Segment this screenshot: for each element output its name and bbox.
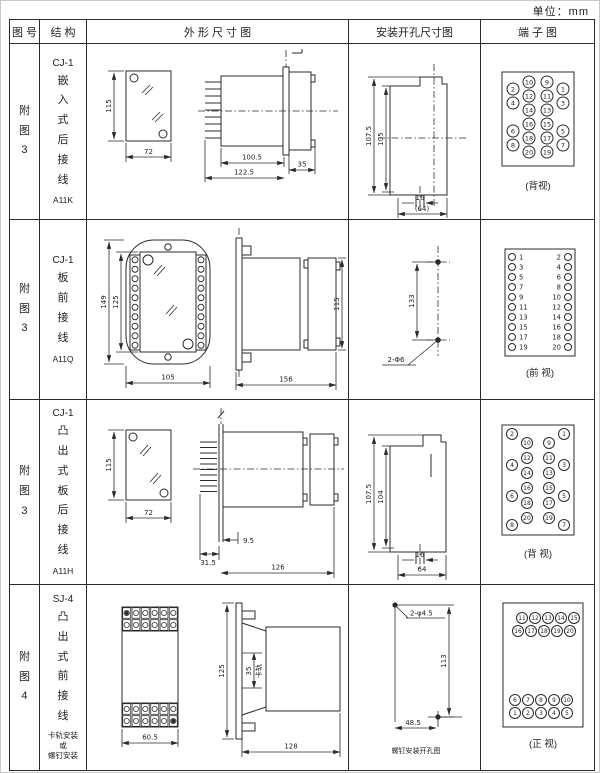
row1-outline-drawing: 115 72 100.5 (88, 46, 348, 218)
dim-128: 128 (284, 743, 297, 751)
svg-text:6: 6 (557, 273, 561, 281)
row4-side-view: 125 35 卡轨 128 (218, 603, 340, 757)
row2-model: CJ-1 (52, 255, 73, 266)
svg-text:2: 2 (526, 711, 530, 717)
dim-31-5: 31.5 (200, 559, 216, 567)
dim-35: 35 (245, 667, 253, 676)
svg-text:12: 12 (531, 616, 539, 622)
svg-text:8: 8 (511, 141, 515, 149)
row4-mount-note: 卡轨安装 或 螺钉安装 (48, 731, 78, 761)
svg-text:1: 1 (562, 431, 566, 438)
svg-text:4: 4 (510, 462, 514, 469)
svg-text:1: 1 (561, 85, 565, 93)
svg-text:16: 16 (514, 629, 522, 635)
svg-text:10: 10 (523, 440, 531, 447)
row2-code: A11Q (52, 354, 73, 364)
svg-text:2: 2 (511, 85, 515, 93)
row3-install-cell: 107.5 104 16 64 (349, 400, 481, 585)
svg-text:8: 8 (557, 283, 561, 291)
dim-64: (64) (414, 205, 429, 213)
dim-149: 149 (100, 295, 108, 308)
svg-text:3: 3 (562, 462, 566, 469)
row4-install-cell: 2-φ4.5 113 48.5 螺钉安装开孔图 (349, 585, 481, 770)
row3-terminal-diagram: 2110912114314131615651817201987 (背 视) (481, 417, 594, 567)
row2-terminal-circles: 1234567891011121314151617181920 (509, 253, 572, 351)
row4-note-line2: 或 (48, 741, 78, 751)
svg-text:14: 14 (557, 616, 565, 622)
svg-text:5: 5 (519, 273, 523, 281)
svg-text:16: 16 (552, 323, 561, 331)
svg-text:11: 11 (543, 92, 551, 100)
svg-text:15: 15 (545, 485, 553, 492)
svg-text:9: 9 (552, 698, 556, 704)
svg-text:18: 18 (523, 500, 531, 507)
row4-outline-cell: 60.5 125 35 卡轨 128 (87, 585, 349, 770)
header-install-dims: 安装开孔尺寸图 (349, 20, 481, 44)
row1-front-view: 115 72 (105, 71, 171, 162)
row2-install-cell: 133 2-Φ6 (349, 220, 481, 400)
row2-fig-no: 附图3 (10, 220, 40, 400)
dim-122-5: 122.5 (233, 168, 253, 176)
svg-text:19: 19 (543, 148, 551, 156)
svg-text:5: 5 (565, 711, 569, 717)
svg-text:20: 20 (552, 343, 561, 351)
dim-133: 133 (408, 294, 416, 307)
row2-structure: CJ-1 板前接线 A11Q (40, 220, 87, 400)
dim-125: 125 (112, 295, 120, 308)
svg-text:9: 9 (519, 293, 523, 301)
dim-125: 125 (218, 664, 226, 677)
dim-16: 16 (415, 551, 424, 559)
row1-fig-no: 附图3 (10, 44, 40, 220)
row1-fig-label: 附图3 (19, 102, 31, 161)
hole-spec: 2-φ4.5 (410, 610, 433, 618)
svg-text:18: 18 (540, 629, 548, 635)
row1-install-cell: 107.5 105 16 (64) (349, 44, 481, 220)
svg-text:17: 17 (545, 500, 553, 507)
row4-structure: SJ-4 凸出式前接线 卡轨安装 或 螺钉安装 (40, 585, 87, 770)
row3-view-label: (背 视) (524, 548, 552, 560)
svg-text:4: 4 (511, 99, 515, 107)
row2-fig-label: 附图3 (19, 280, 31, 339)
header-terminal-diagram: 端 子 图 (481, 20, 594, 44)
row1-structure: CJ-1 嵌入式后接线 A11K (40, 44, 87, 220)
svg-text:9: 9 (547, 440, 551, 447)
row3-structure: CJ-1 凸出式板后接线 A11H (40, 400, 87, 585)
svg-text:7: 7 (561, 141, 565, 149)
svg-text:13: 13 (544, 616, 552, 622)
row4-outline-drawing: 60.5 125 35 卡轨 128 (88, 587, 348, 768)
row1-terminal-cell: 1092112114314131615651817872019 (背视) (481, 44, 594, 220)
svg-text:16: 16 (523, 485, 531, 492)
svg-text:19: 19 (553, 629, 561, 635)
svg-text:18: 18 (525, 134, 533, 142)
dim-100-5: 100.5 (241, 153, 261, 161)
svg-text:5: 5 (561, 127, 565, 135)
svg-text:15: 15 (519, 323, 528, 331)
row4-front-view: 60.5 (122, 607, 178, 747)
svg-text:12: 12 (525, 92, 533, 100)
row3-install-drawing: 107.5 104 16 64 (350, 402, 480, 583)
header-structure: 结 构 (40, 20, 87, 44)
row3-side-view: 9.5 31.5 126 (193, 408, 344, 578)
dim-48-5: 48.5 (405, 719, 421, 727)
row4-terminal-cell: 1112131415161718192067891012345 (正 视) (481, 585, 594, 770)
dim-115: 115 (105, 458, 113, 471)
row2-view-label: (前 视) (526, 367, 554, 379)
row4-terminal-circles: 1112131415161718192067891012345 (510, 612, 580, 718)
svg-text:7: 7 (519, 283, 523, 291)
header-fig-no: 图 号 (10, 20, 40, 44)
svg-text:17: 17 (519, 333, 528, 341)
row1-terminal-circles: 1092112114314131615651817872019 (507, 76, 569, 158)
svg-text:20: 20 (525, 148, 533, 156)
spec-table: 图 号 结 构 外 形 尺 寸 图 安装开孔尺寸图 端 子 图 附图3 CJ-1… (9, 19, 595, 771)
svg-text:19: 19 (519, 343, 528, 351)
rail-label: 卡轨 (254, 664, 263, 678)
row3-struct-text: 凸出式板后接线 (57, 422, 69, 561)
svg-text:18: 18 (552, 333, 561, 341)
svg-text:1: 1 (513, 711, 517, 717)
svg-text:14: 14 (552, 313, 561, 321)
svg-text:14: 14 (525, 106, 533, 114)
svg-text:5: 5 (562, 493, 566, 500)
dim-35: 35 (297, 160, 306, 168)
svg-text:10: 10 (563, 698, 571, 704)
row1-view-label: (背视) (525, 180, 550, 192)
row1-side-view: 100.5 122.5 35 (198, 49, 338, 182)
row4-model: SJ-4 (53, 594, 74, 605)
dim-9-5: 9.5 (243, 537, 254, 545)
row2-outline-drawing: 149 125 105 (88, 222, 348, 398)
manual-page: 单位：mm 图 号 结 构 外 形 尺 寸 图 安装开孔尺寸图 端 子 图 附图… (0, 0, 600, 773)
header-outline-dims: 外 形 尺 寸 图 (87, 20, 349, 44)
svg-text:4: 4 (552, 711, 556, 717)
row2-outline-cell: 149 125 105 (87, 220, 349, 400)
row4-note-line3: 螺钉安装 (48, 751, 78, 761)
svg-text:11: 11 (545, 455, 553, 462)
row2-struct-text: 板前接线 (57, 269, 69, 348)
row2-side-view: 156 115 (236, 228, 346, 390)
svg-text:4: 4 (557, 263, 561, 271)
svg-text:10: 10 (552, 293, 561, 301)
row1-outline-cell: 115 72 100.5 (87, 44, 349, 220)
dim-72: 72 (144, 148, 153, 156)
dim-107-5: 107.5 (365, 483, 373, 503)
svg-text:16: 16 (525, 120, 533, 128)
dim-126: 126 (271, 563, 285, 571)
svg-text:3: 3 (519, 263, 523, 271)
dim-104: 104 (377, 489, 385, 503)
row3-code: A11H (53, 566, 74, 576)
svg-text:11: 11 (518, 616, 526, 622)
svg-text:6: 6 (513, 698, 517, 704)
dim-60-5: 60.5 (142, 734, 158, 742)
dim-105: 105 (377, 132, 385, 145)
row3-fig-no: 附图3 (10, 400, 40, 585)
row1-install-drawing: 107.5 105 16 (64) (350, 46, 480, 218)
row1-model: CJ-1 (52, 58, 73, 69)
row2-terminal-cell: 1234567891011121314151617181920 (前 视) (481, 220, 594, 400)
svg-text:2: 2 (557, 253, 561, 261)
row4-fig-label: 附图4 (19, 648, 31, 707)
row2-front-view: 149 125 105 (100, 240, 210, 388)
row4-terminal-diagram: 1112131415161718192067891012345 (正 视) (481, 595, 594, 761)
install-caption: 螺钉安装开孔图 (391, 746, 440, 755)
svg-text:7: 7 (526, 698, 530, 704)
svg-text:13: 13 (545, 470, 553, 477)
svg-text:11: 11 (519, 303, 528, 311)
row1-struct-text: 嵌入式后接线 (57, 72, 69, 191)
row1-code: A11K (53, 195, 73, 205)
dim-72: 72 (144, 509, 153, 517)
svg-text:14: 14 (523, 470, 531, 477)
svg-text:3: 3 (539, 711, 543, 717)
svg-text:17: 17 (543, 134, 551, 142)
dim-156: 156 (279, 375, 293, 383)
dim-115: 115 (105, 99, 113, 112)
svg-text:13: 13 (543, 106, 551, 114)
svg-text:15: 15 (570, 616, 578, 622)
row3-front-view: 115 72 (105, 430, 171, 523)
svg-text:20: 20 (566, 629, 574, 635)
row3-outline-drawing: 115 72 9.5 (88, 402, 348, 583)
row4-view-label: (正 视) (529, 738, 557, 750)
svg-text:7: 7 (562, 522, 566, 529)
row4-install-drawing: 2-φ4.5 113 48.5 螺钉安装开孔图 (350, 587, 480, 768)
dim-64: 64 (417, 565, 426, 573)
row4-note-line1: 卡轨安装 (48, 731, 78, 741)
dim-105: 105 (161, 373, 174, 381)
svg-text:15: 15 (543, 120, 551, 128)
dim-113: 113 (440, 654, 448, 667)
svg-text:6: 6 (511, 127, 515, 135)
svg-text:12: 12 (523, 455, 531, 462)
row1-terminal-diagram: 1092112114314131615651817872019 (背视) (481, 62, 594, 202)
svg-text:8: 8 (510, 522, 514, 529)
svg-text:1: 1 (519, 253, 523, 261)
row2-install-drawing: 133 2-Φ6 (350, 222, 480, 398)
unit-label: 单位：mm (533, 3, 589, 19)
hole-spec: 2-Φ6 (387, 356, 404, 364)
dim-115: 115 (333, 297, 341, 310)
row3-fig-label: 附图3 (19, 462, 31, 521)
row3-terminal-circles: 2110912114314131615651817201987 (507, 429, 570, 531)
row3-model: CJ-1 (52, 408, 73, 419)
svg-text:10: 10 (525, 78, 533, 86)
row3-outline-cell: 115 72 9.5 (87, 400, 349, 585)
row4-fig-no: 附图4 (10, 585, 40, 770)
dim-16: 16 (415, 194, 424, 202)
svg-text:17: 17 (527, 629, 535, 635)
svg-text:6: 6 (510, 493, 514, 500)
svg-text:12: 12 (552, 303, 561, 311)
svg-text:13: 13 (519, 313, 528, 321)
svg-text:2: 2 (510, 431, 514, 438)
svg-text:3: 3 (561, 99, 565, 107)
dim-107-5: 107.5 (365, 125, 373, 145)
row2-terminal-diagram: 1234567891011121314151617181920 (前 视) (481, 235, 594, 385)
row3-terminal-cell: 2110912114314131615651817201987 (背 视) (481, 400, 594, 585)
svg-text:20: 20 (523, 515, 531, 522)
svg-text:8: 8 (539, 698, 543, 704)
svg-text:19: 19 (545, 515, 553, 522)
svg-text:9: 9 (545, 78, 549, 86)
row4-struct-text: 凸出式前接线 (57, 608, 69, 727)
